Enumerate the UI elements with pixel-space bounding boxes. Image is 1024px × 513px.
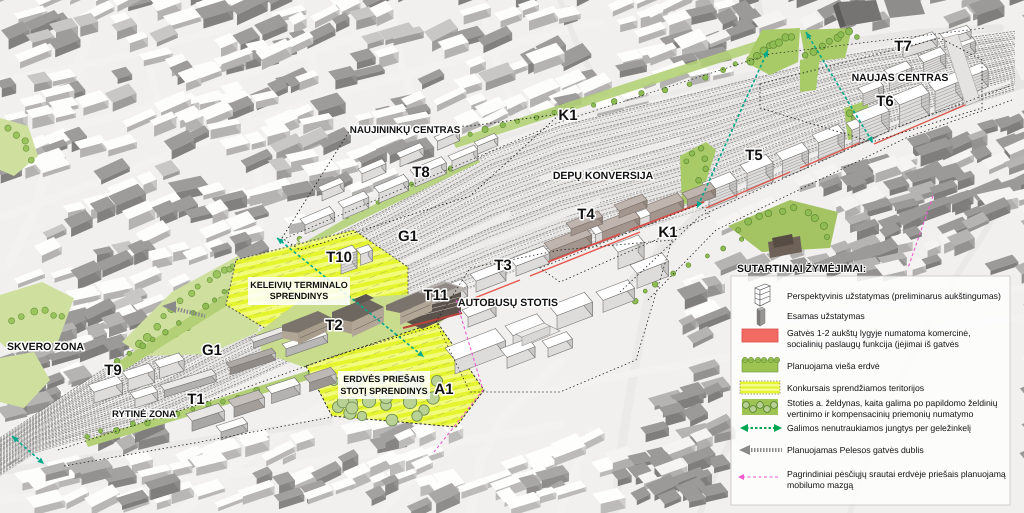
svg-text:Esamas užstatymas: Esamas užstatymas xyxy=(787,311,865,321)
svg-text:Perspektyvinis užstatymas (pre: Perspektyvinis užstatymas (preliminarus … xyxy=(787,291,1001,301)
svg-text:Planuojama vieša erdvė: Planuojama vieša erdvė xyxy=(787,361,880,371)
svg-text:T10: T10 xyxy=(326,249,352,266)
svg-text:A1: A1 xyxy=(434,381,453,398)
svg-text:T9: T9 xyxy=(104,362,122,379)
svg-text:T1: T1 xyxy=(187,391,205,408)
svg-text:T7: T7 xyxy=(894,38,912,55)
svg-text:T11: T11 xyxy=(423,287,448,304)
svg-text:RYTINĖ ZONA: RYTINĖ ZONA xyxy=(112,408,176,420)
svg-text:SPRENDINYS: SPRENDINYS xyxy=(270,291,329,301)
svg-text:NAUJININKŲ CENTRAS: NAUJININKŲ CENTRAS xyxy=(350,125,461,136)
svg-text:K1: K1 xyxy=(658,224,677,241)
svg-text:G1: G1 xyxy=(202,342,222,359)
svg-text:Pagrindiniai pėsčiųjų srautai: Pagrindiniai pėsčiųjų srautai erdvėje pr… xyxy=(787,469,1006,479)
svg-text:DEPŲ KONVERSIJA: DEPŲ KONVERSIJA xyxy=(553,170,654,182)
svg-text:STOTĮ SPRENDINYS: STOTĮ SPRENDINYS xyxy=(340,386,427,396)
svg-text:Konkursais sprendžiamos terito: Konkursais sprendžiamos teritorijos xyxy=(787,383,925,393)
svg-text:KELEIVIŲ TERMINALO: KELEIVIŲ TERMINALO xyxy=(250,280,348,290)
svg-text:T4: T4 xyxy=(577,206,595,223)
svg-text:T3: T3 xyxy=(494,257,512,274)
svg-text:SKVERO ZONA: SKVERO ZONA xyxy=(7,341,84,353)
svg-text:vertinimo ir kompensacinių pri: vertinimo ir kompensacinių priemonių num… xyxy=(787,409,974,419)
svg-text:T6: T6 xyxy=(876,93,894,110)
svg-text:socialinių paslaugų funkcija (: socialinių paslaugų funkcija (įėjimai iš… xyxy=(787,339,960,349)
svg-text:SUTARTINIAI ŽYMĖJIMAI:: SUTARTINIAI ŽYMĖJIMAI: xyxy=(737,262,866,275)
svg-text:NAUJAS CENTRAS: NAUJAS CENTRAS xyxy=(852,72,949,84)
svg-text:ERDVĖS PRIEŠAIS: ERDVĖS PRIEŠAIS xyxy=(343,373,425,384)
svg-text:T5: T5 xyxy=(745,147,763,164)
svg-text:K1: K1 xyxy=(558,107,577,124)
svg-text:mobilumo mazgą: mobilumo mazgą xyxy=(787,480,853,490)
svg-text:Gatvės 1-2 aukštų lygyje numat: Gatvės 1-2 aukštų lygyje numatoma komerc… xyxy=(787,328,971,338)
svg-text:T2: T2 xyxy=(325,317,343,334)
svg-text:AUTOBUSŲ STOTIS: AUTOBUSŲ STOTIS xyxy=(458,297,558,309)
svg-text:Stoties a. želdynas, kaita gal: Stoties a. želdynas, kaita galima po pap… xyxy=(787,398,998,408)
svg-text:G1: G1 xyxy=(398,228,418,245)
svg-text:Planuojamas Pelesos gatvės dub: Planuojamas Pelesos gatvės dublis xyxy=(787,445,924,455)
svg-text:T8: T8 xyxy=(412,164,430,181)
svg-text:Galimos nenutraukiamos jungtys: Galimos nenutraukiamos jungtys per gelež… xyxy=(787,423,971,433)
